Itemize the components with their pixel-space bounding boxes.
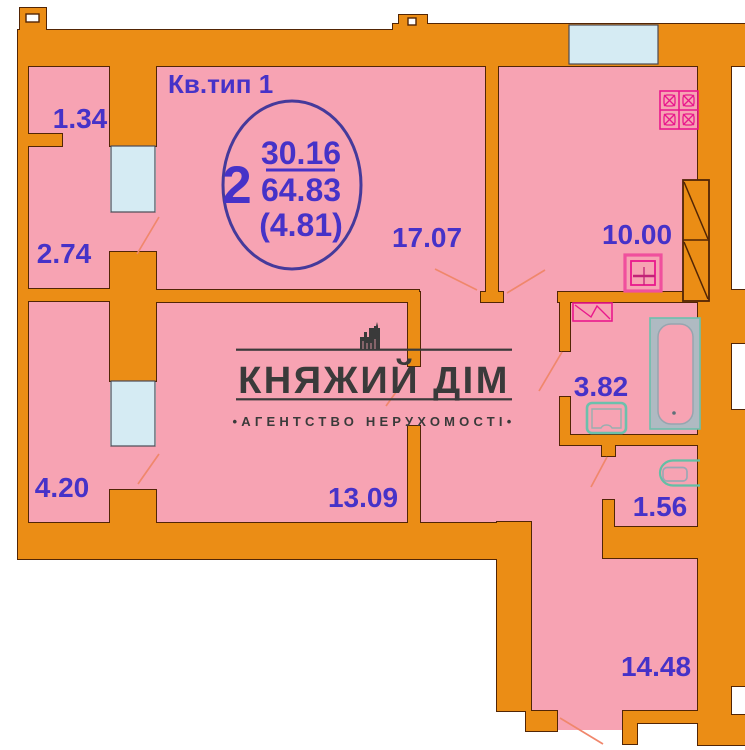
svg-text:14.48: 14.48: [621, 651, 691, 682]
svg-text:1.34: 1.34: [53, 103, 108, 134]
svg-text:КНЯЖИЙ ДІМ: КНЯЖИЙ ДІМ: [238, 357, 510, 402]
svg-text:2.74: 2.74: [37, 238, 92, 269]
svg-text:2: 2: [222, 156, 251, 215]
svg-text:4.20: 4.20: [35, 472, 90, 503]
svg-text:•АГЕНТСТВО НЕРУХОМОСТІ•: •АГЕНТСТВО НЕРУХОМОСТІ•: [233, 414, 516, 429]
svg-text:13.09: 13.09: [328, 482, 398, 513]
svg-text:1.56: 1.56: [633, 491, 688, 522]
svg-text:17.07: 17.07: [392, 222, 462, 253]
svg-text:(4.81): (4.81): [259, 207, 343, 243]
svg-text:3.82: 3.82: [574, 371, 629, 402]
svg-text:Кв.тип 1: Кв.тип 1: [168, 69, 273, 99]
svg-text:10.00: 10.00: [602, 219, 672, 250]
svg-text:30.16: 30.16: [261, 135, 341, 171]
svg-text:64.83: 64.83: [261, 172, 341, 208]
